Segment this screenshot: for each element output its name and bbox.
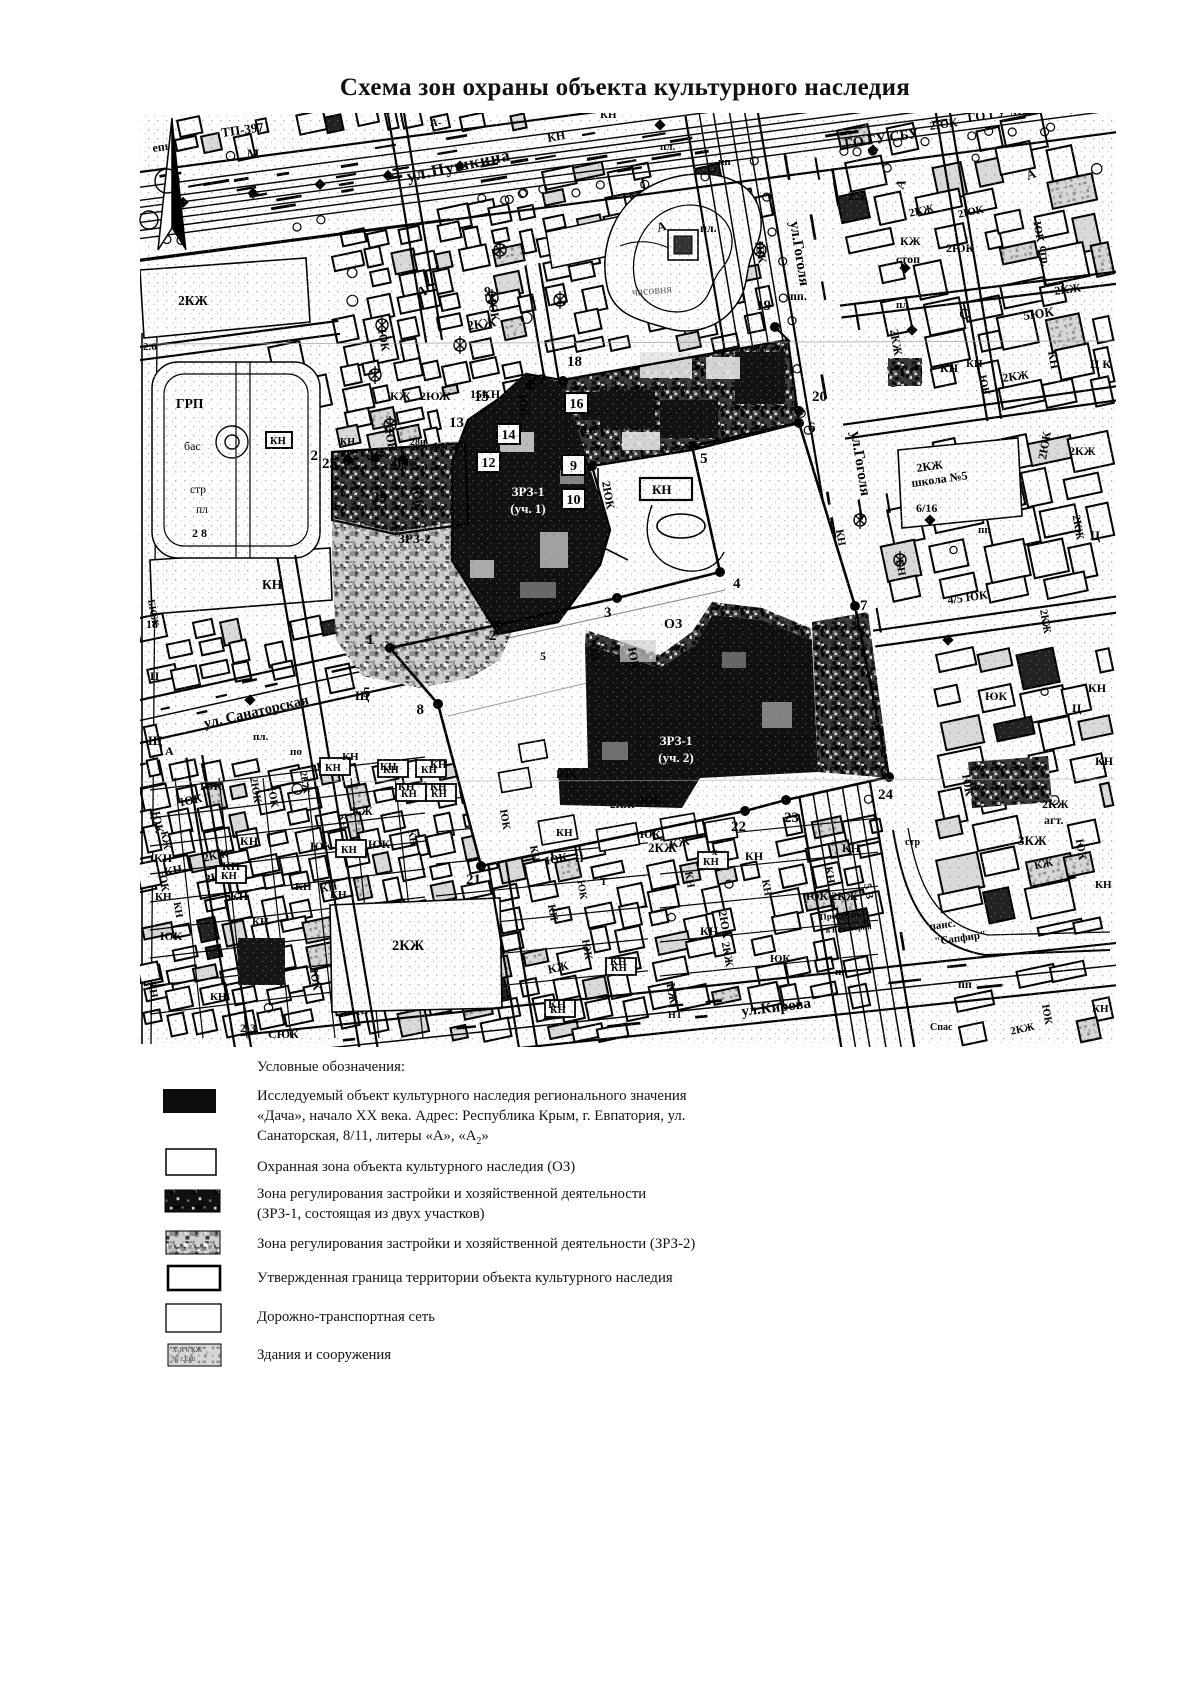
- svg-text:№ г.Евп: № г.Евп: [172, 1355, 196, 1363]
- svg-text:Х-Я 6 КЖ: Х-Я 6 КЖ: [172, 1346, 203, 1354]
